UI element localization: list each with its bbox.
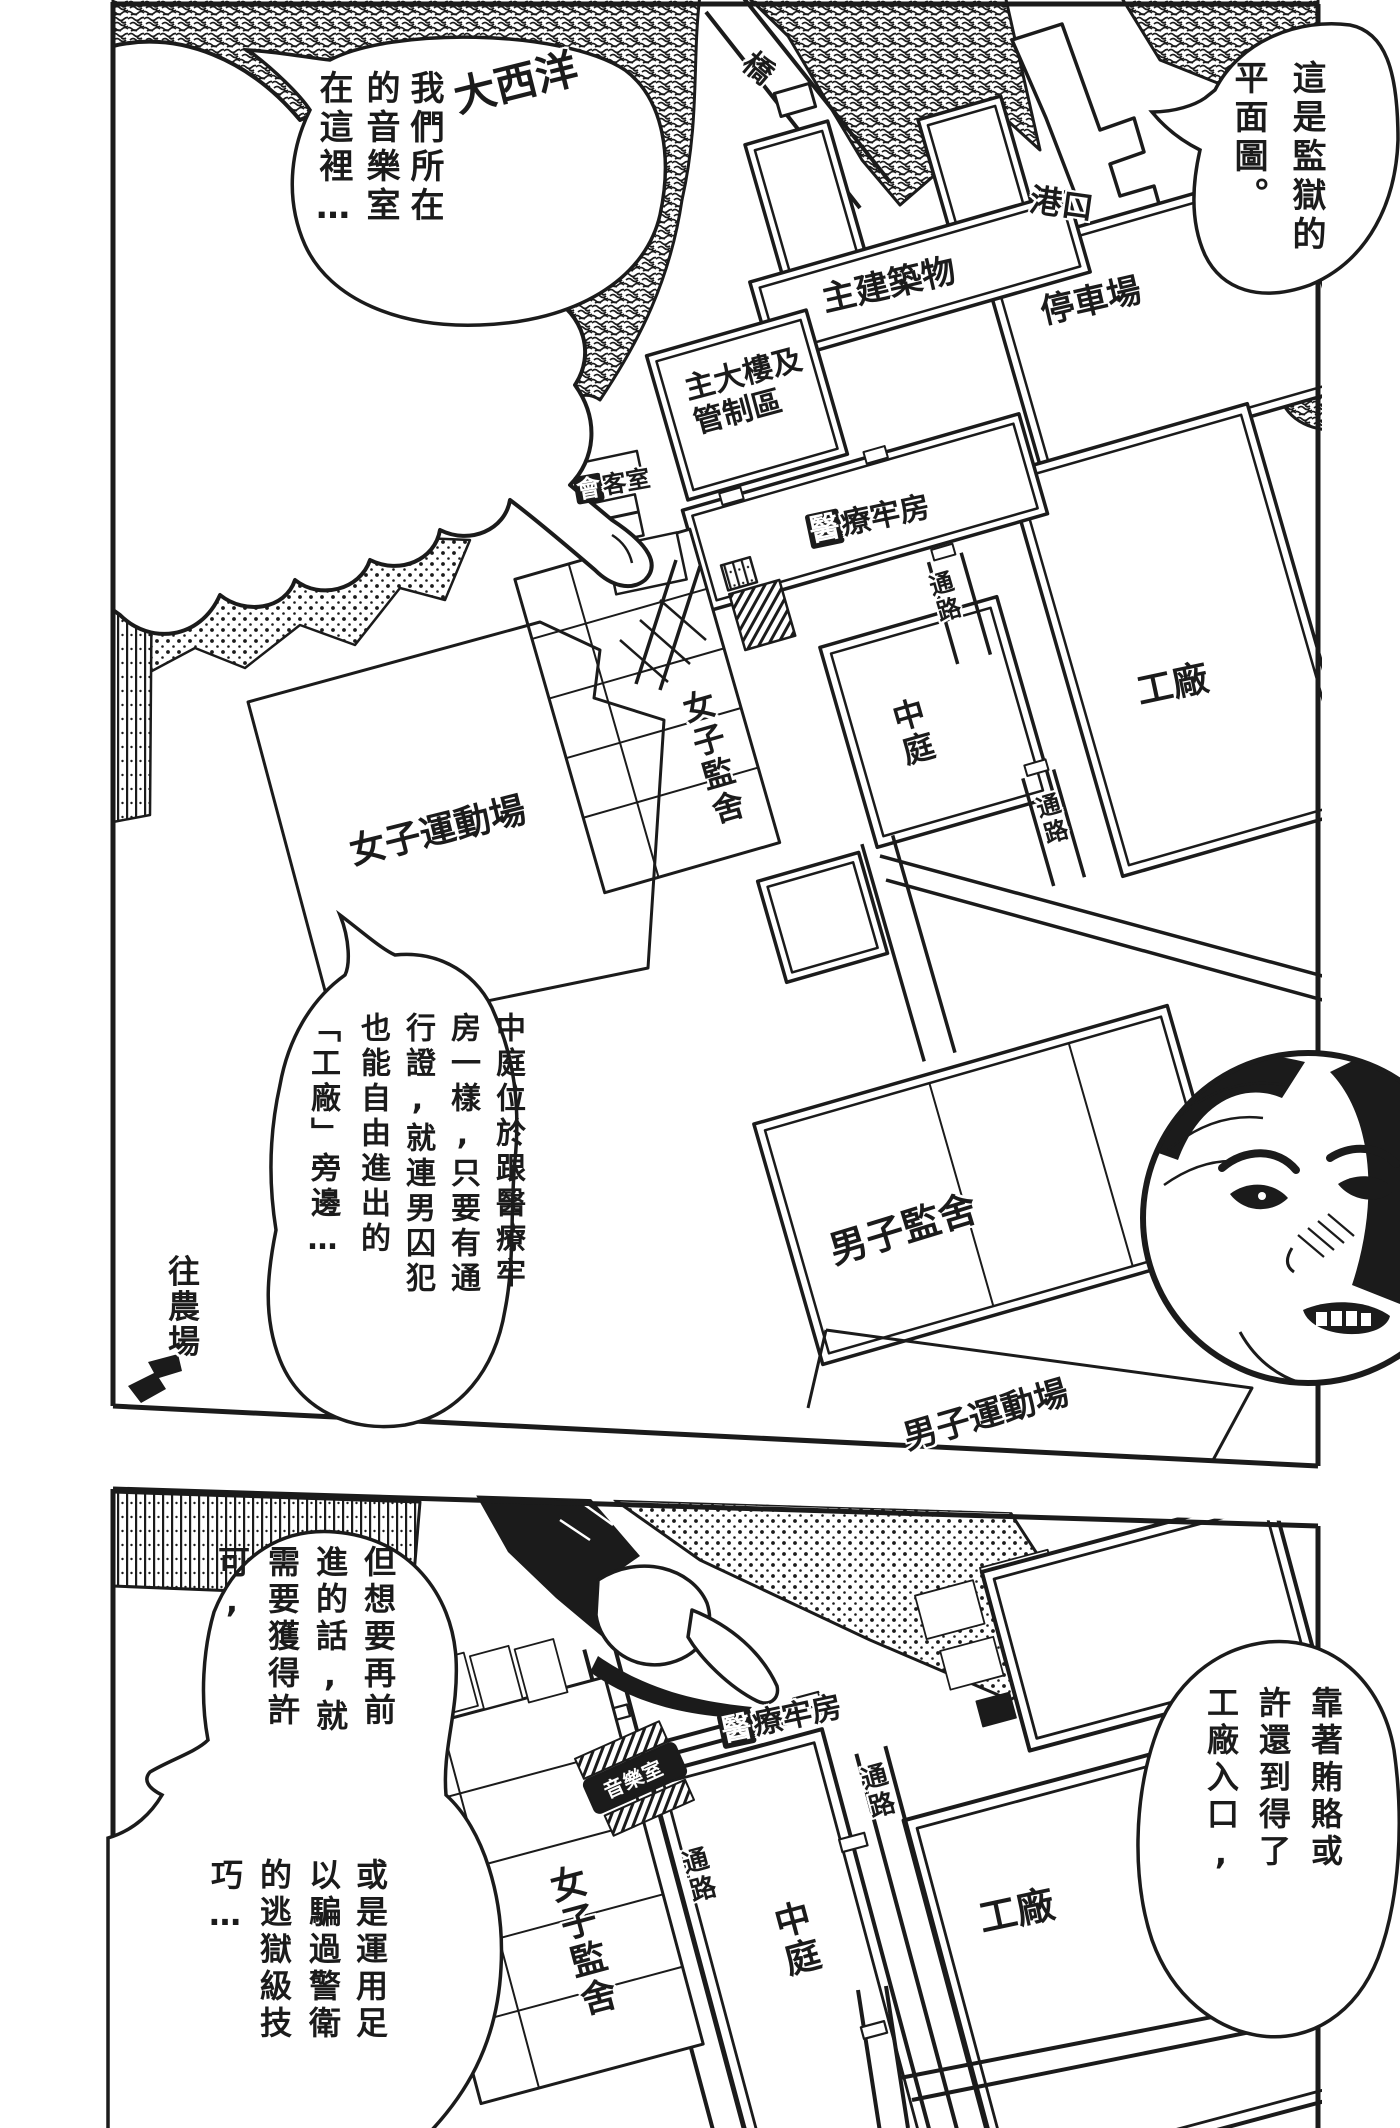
bubble-column: 在這裡…: [316, 70, 350, 232]
bubble-column: 巧…: [209, 1858, 241, 1938]
face-inset: [1143, 1050, 1400, 1450]
bubble-column: 的逃獄級技: [258, 1858, 290, 2043]
map-label-port: 港口: [1027, 175, 1097, 229]
bubble-column: 工廠入口,: [1205, 1686, 1237, 1877]
bubble-column: 許還到得了: [1257, 1686, 1289, 1871]
to-farm-arrow: [128, 1354, 182, 1403]
bubble-column: 或是運用足: [354, 1858, 386, 2043]
bubble-column: 房一樣,只要有通: [447, 1012, 477, 1297]
map-label-to-farm: 往農場: [166, 1255, 198, 1360]
bubble-column: 這是監獄的: [1289, 60, 1323, 255]
bubble-column: 「工廠」旁邊…: [307, 1012, 337, 1262]
courtyard-walls: [820, 597, 1054, 848]
bubble-column: 平面圖。: [1231, 60, 1265, 216]
bubble-column: 也能自由進出的: [357, 1012, 387, 1257]
bubble-column: 以騙過警衛: [307, 1858, 339, 2043]
bubble-column: 靠著賄賂或: [1309, 1686, 1341, 1871]
manga-page: 我們所在 的音樂室 在這裡… 這是監獄的 平面圖。 中庭位於跟醫療牢 房一樣,只…: [0, 0, 1400, 2128]
artwork-layer: [0, 0, 1400, 2128]
bubble-column: 我們所在: [407, 70, 441, 226]
bubble-column: 中庭位於跟醫療牢: [492, 1012, 522, 1292]
bubble-column: 需要獲得許: [266, 1545, 298, 1730]
bubble-column: 但想要再前: [362, 1545, 394, 1730]
bubble-column: 進的話,就: [314, 1545, 346, 1736]
bubble-column: 可,: [216, 1545, 248, 1625]
bubble-column: 行證,就連男囚犯: [402, 1012, 432, 1297]
bubble-column: 的音樂室: [363, 70, 397, 226]
